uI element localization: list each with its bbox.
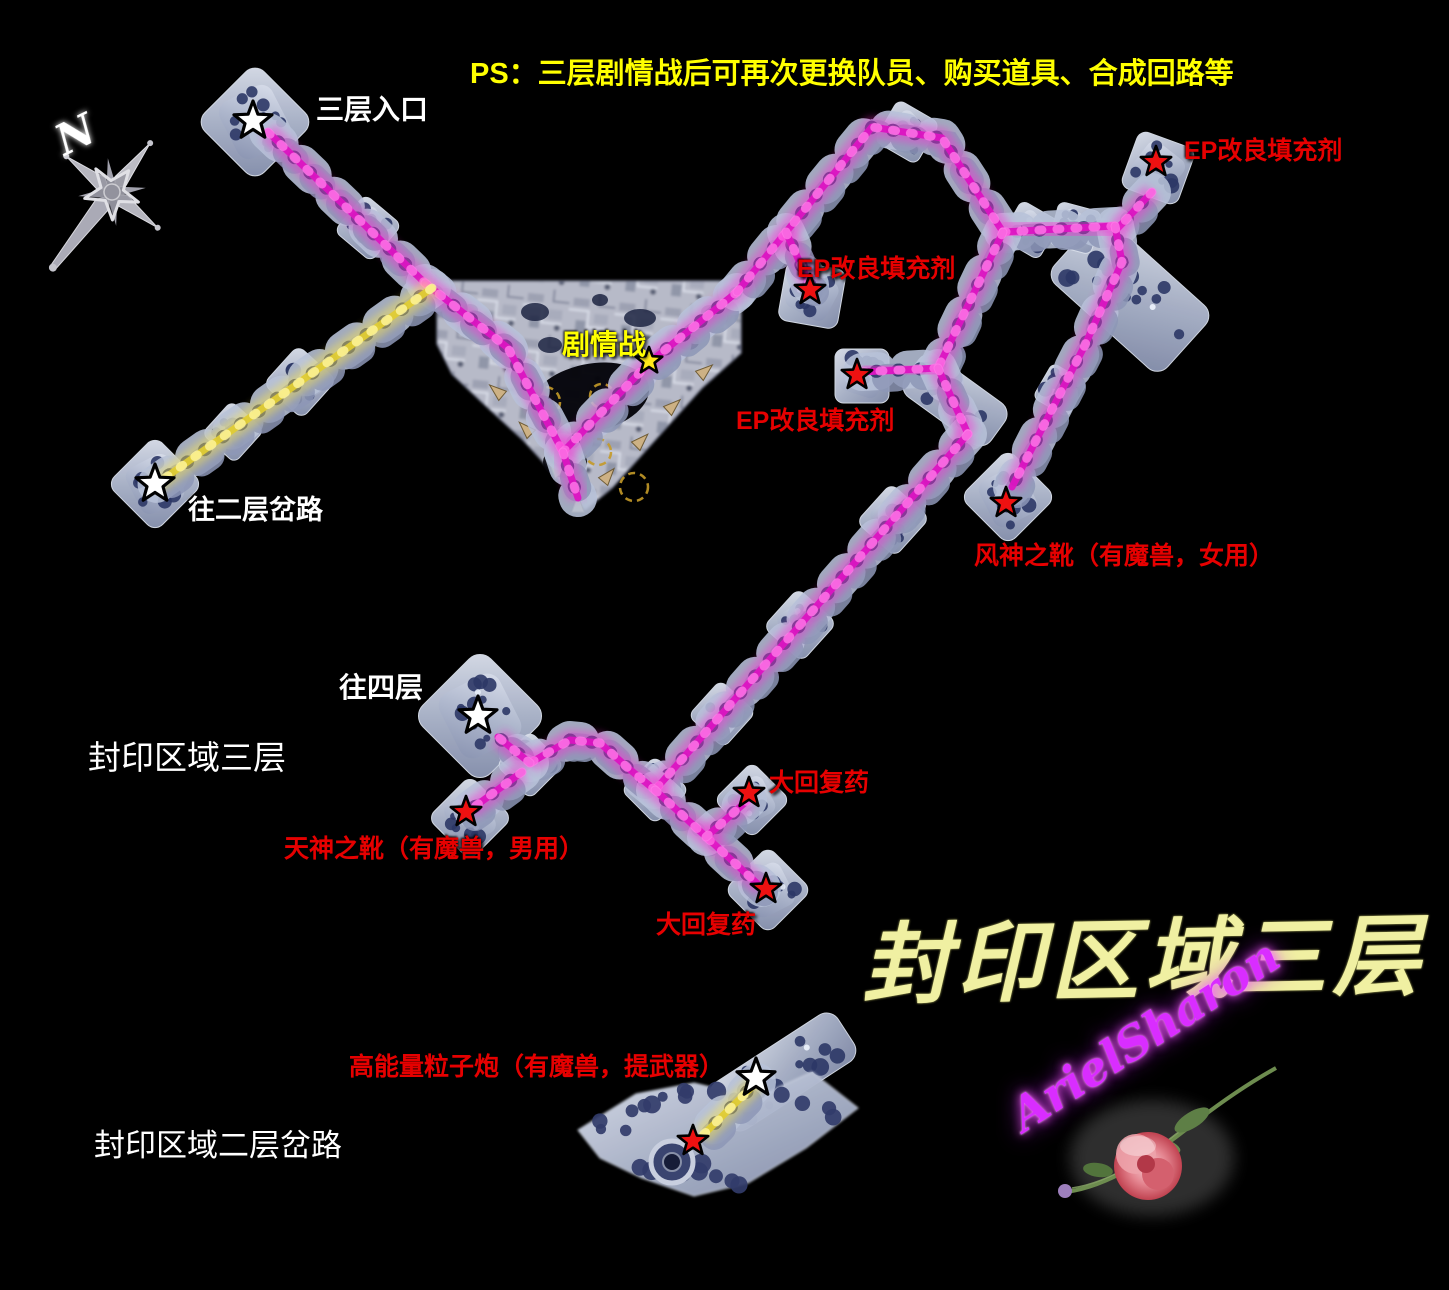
gold-ring-icon <box>620 473 648 501</box>
map-graphics: N <box>0 0 1449 1290</box>
map-canvas: N PS：三层剧情战后可再次更换队员、购买道具、合成回路等 三层入口 往二层岔路… <box>0 0 1449 1290</box>
rose-image <box>1058 1068 1276 1216</box>
compass-n-label: N <box>46 103 105 165</box>
compass-rose-icon <box>2 103 200 308</box>
